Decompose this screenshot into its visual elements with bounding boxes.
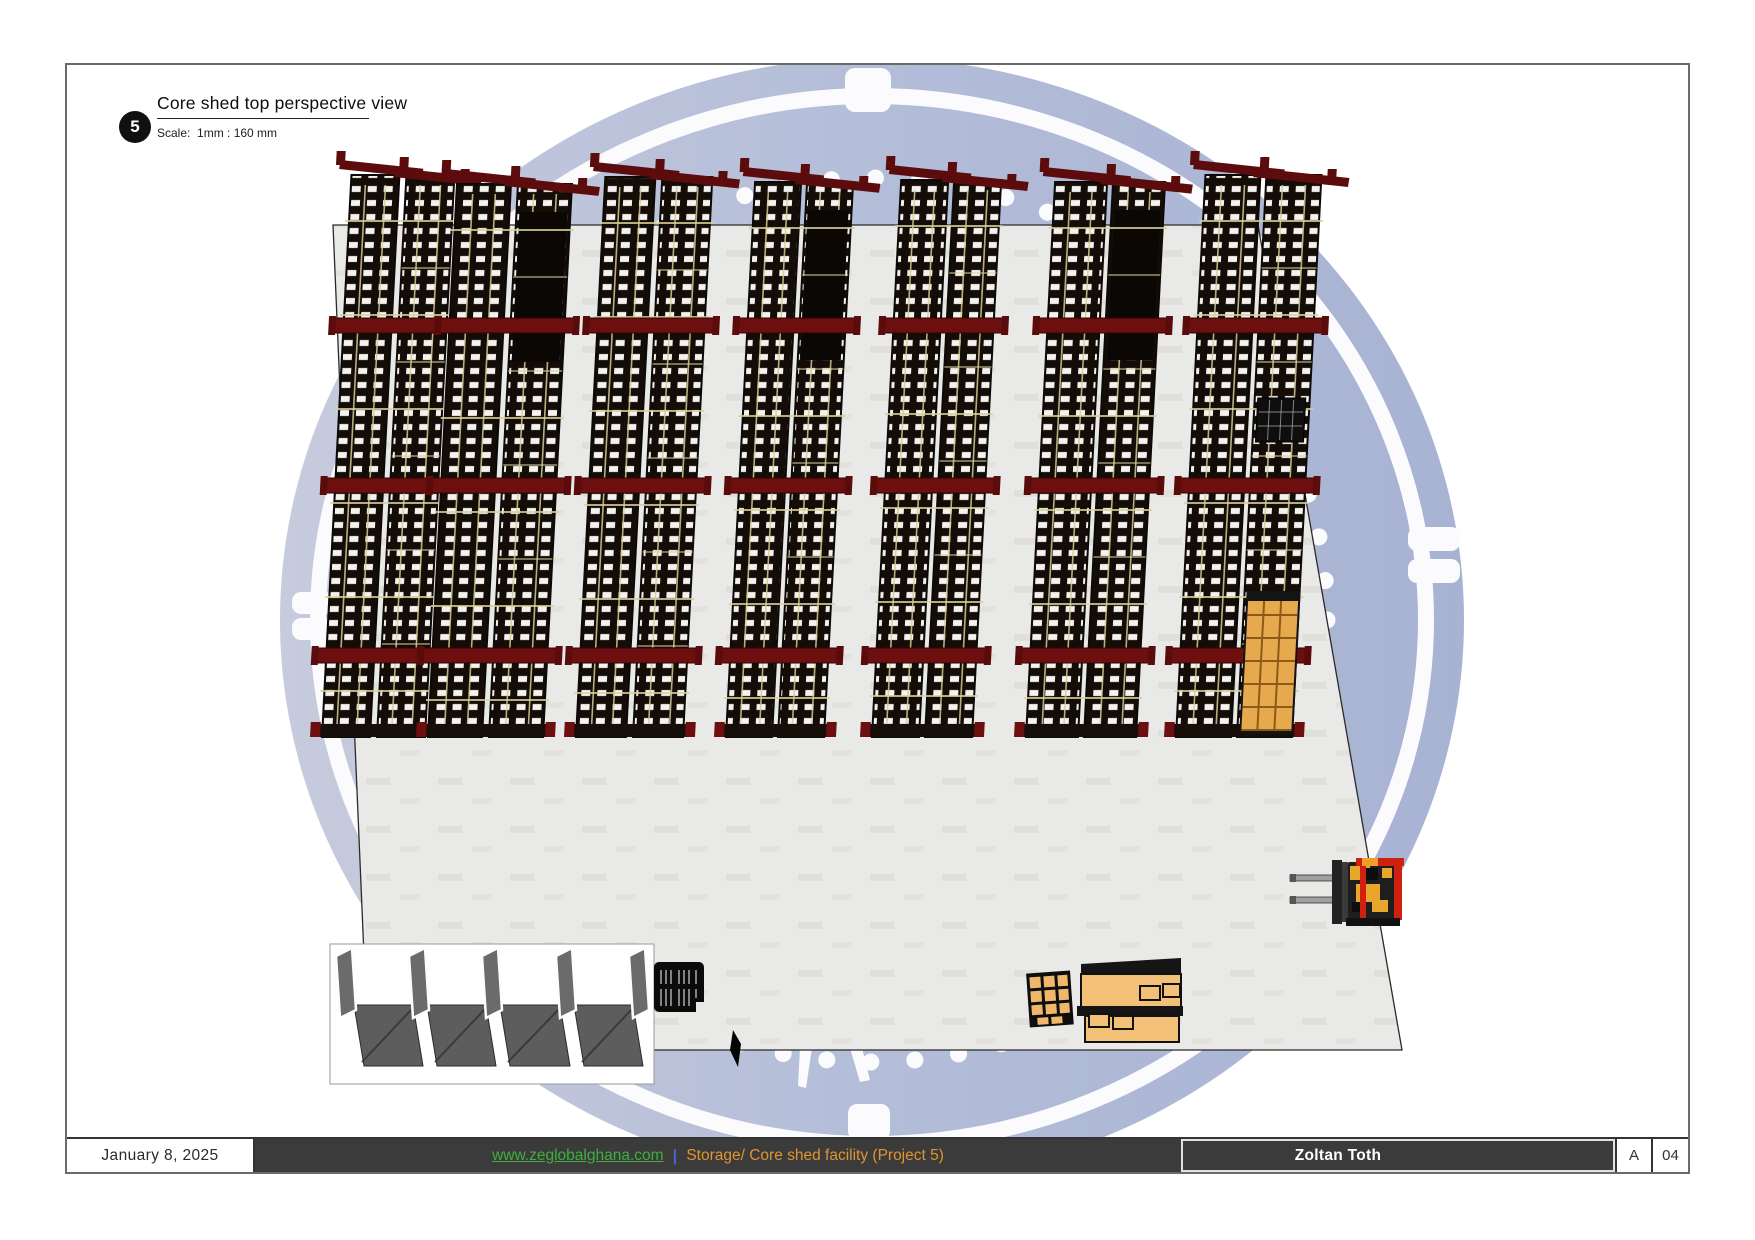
compass-east-marker [1408, 527, 1460, 551]
footer-center-bar: www.zeglobalghana.com | Storage/ Core sh… [255, 1139, 1181, 1172]
grid-shelf [1026, 971, 1074, 1028]
scale-label: Scale: 1mm : 160 mm [157, 126, 277, 140]
date-cell: January 8, 2025 [67, 1139, 255, 1172]
revision-cell: A [1615, 1139, 1651, 1172]
bay-wall [336, 948, 356, 1018]
pallet-stack [654, 962, 708, 1014]
website-link[interactable]: www.zeglobalghana.com [492, 1147, 663, 1165]
sheet-number-cell: 04 [1651, 1139, 1688, 1172]
view-number-badge: 5 [119, 111, 151, 143]
pallet-grid [1255, 398, 1305, 442]
sheet-frame: 5 Core shed top perspective view Scale: … [65, 63, 1690, 1174]
crate-stack [1240, 592, 1299, 732]
compass-south-marker [848, 1104, 890, 1137]
bay-wall [556, 948, 576, 1018]
view-title: Core shed top perspective view [157, 93, 457, 114]
storage-bays [330, 944, 654, 1084]
scene-canvas [67, 65, 1688, 1137]
bay-wall [409, 948, 429, 1018]
title-underline [157, 118, 369, 119]
author-cell: Zoltan Toth [1181, 1139, 1615, 1172]
compass-north-marker [845, 68, 891, 112]
sheet-footer: January 8, 2025 www.zeglobalghana.com | … [67, 1137, 1688, 1172]
bay-wall [629, 948, 649, 1018]
project-title: Storage/ Core shed facility (Project 5) [686, 1147, 944, 1165]
bay-wall [482, 948, 502, 1018]
desk [1077, 958, 1183, 1042]
footer-separator: | [673, 1146, 678, 1166]
drawing-sheet: 5 Core shed top perspective view Scale: … [0, 0, 1755, 1240]
